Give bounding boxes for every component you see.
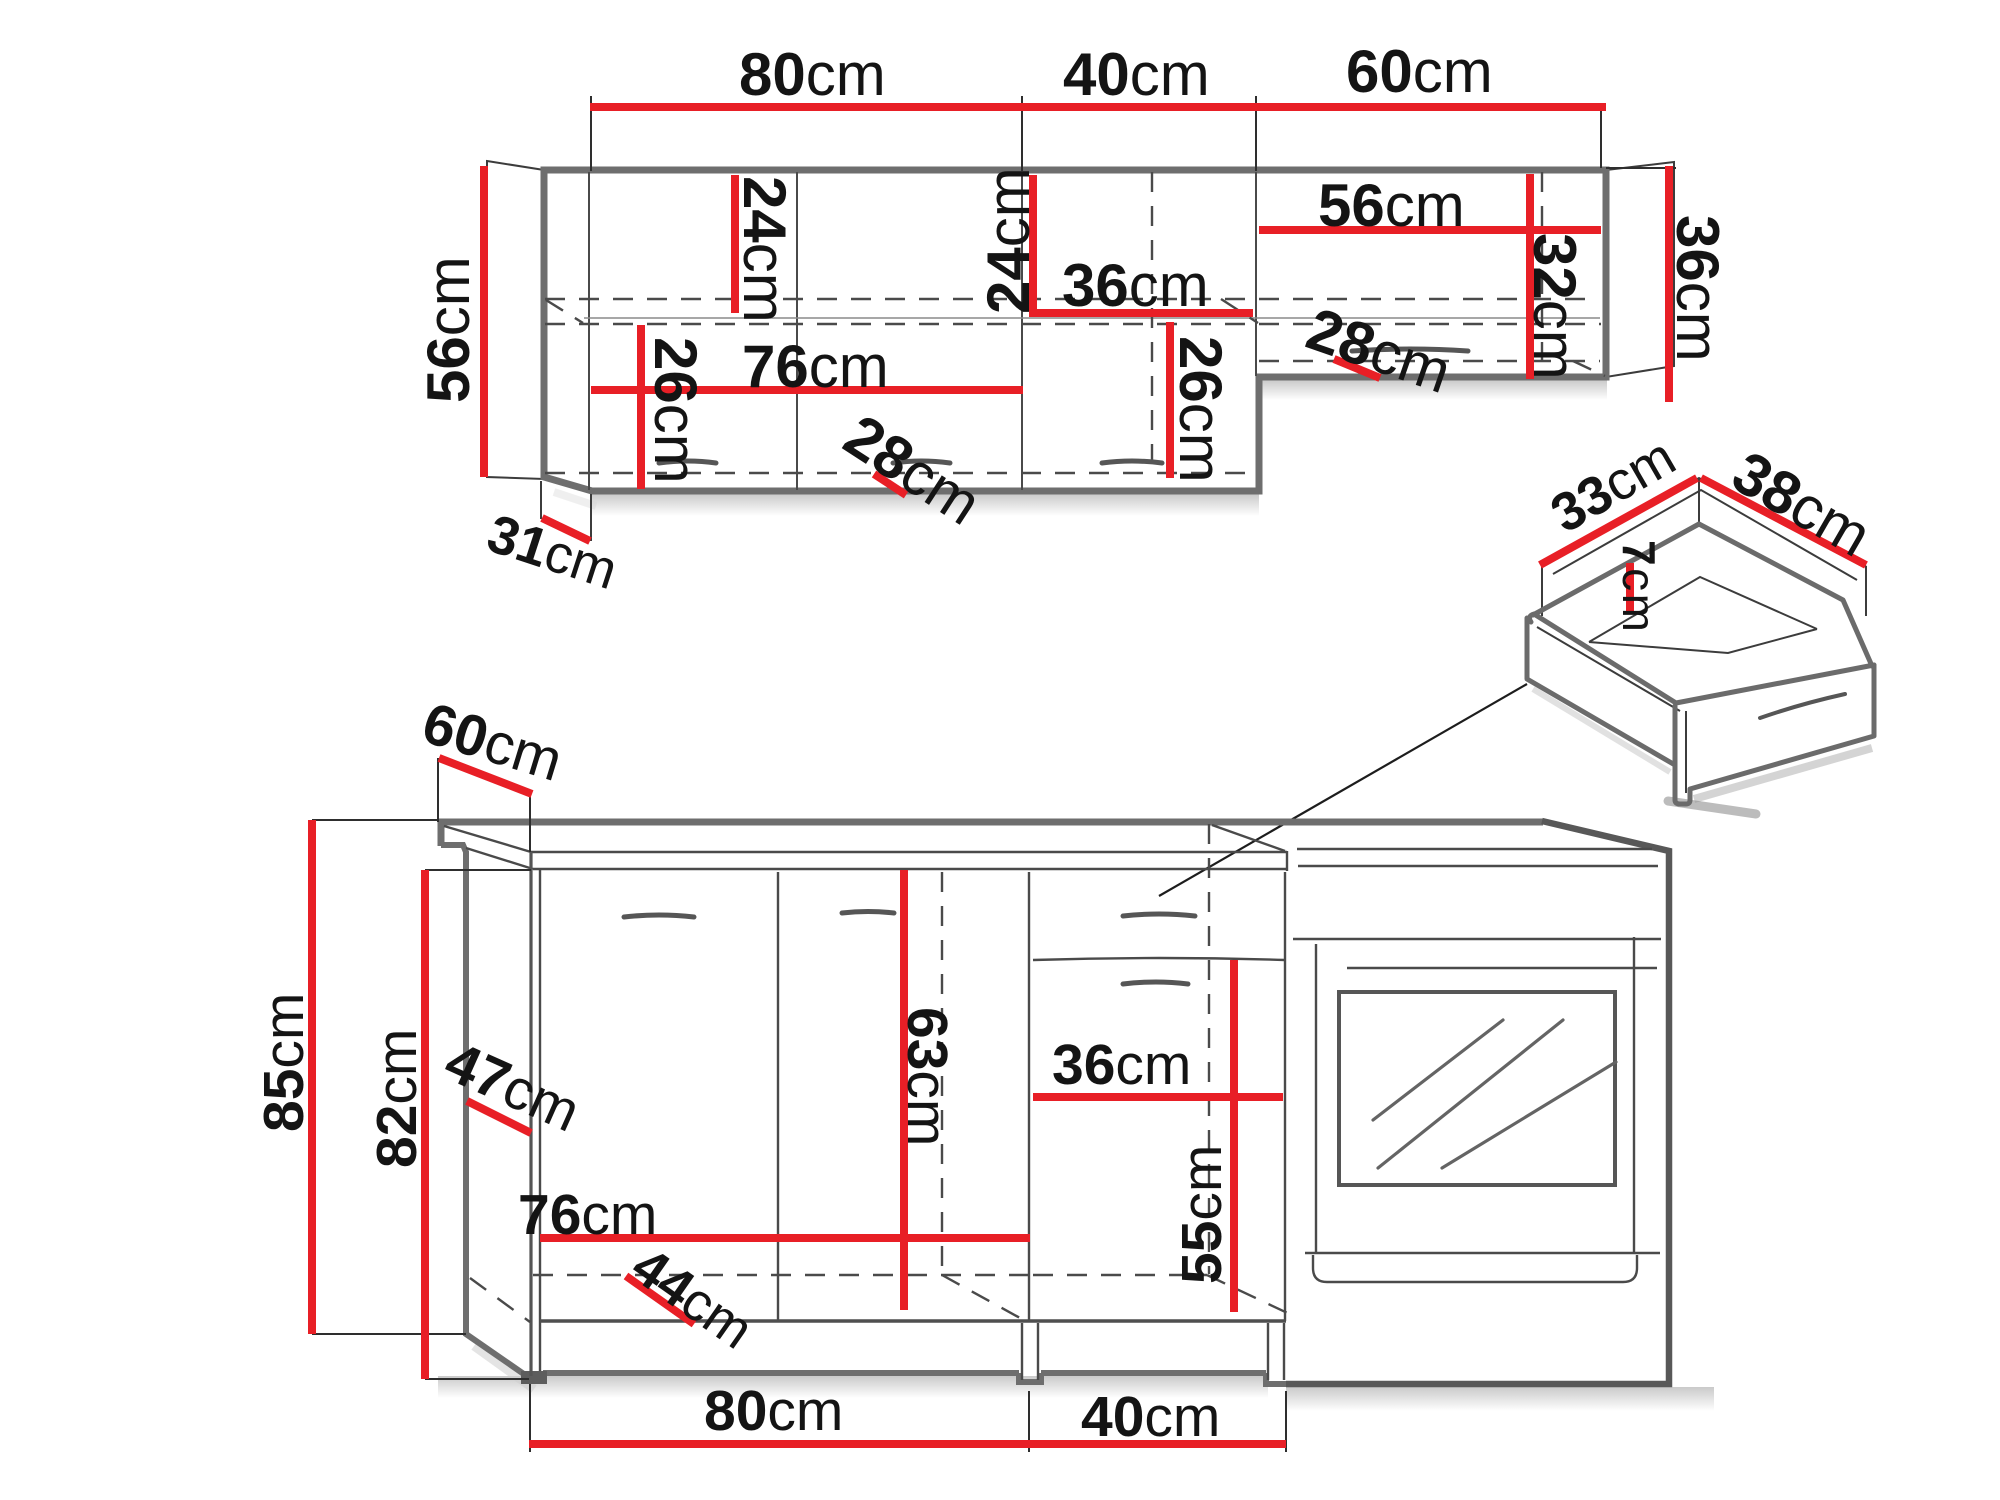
svg-text:82cm: 82cm	[365, 1029, 429, 1168]
svg-text:56cm: 56cm	[1318, 172, 1465, 239]
svg-text:36cm: 36cm	[1062, 252, 1209, 319]
svg-text:24cm: 24cm	[975, 167, 1042, 314]
svg-text:40cm: 40cm	[1063, 41, 1210, 108]
svg-text:32cm: 32cm	[1521, 233, 1588, 380]
svg-text:80cm: 80cm	[739, 41, 886, 108]
svg-text:76cm: 76cm	[742, 333, 889, 400]
svg-text:26cm: 26cm	[1167, 336, 1234, 483]
svg-text:40cm: 40cm	[1081, 1385, 1220, 1449]
svg-text:80cm: 80cm	[704, 1379, 843, 1443]
svg-text:24cm: 24cm	[731, 176, 798, 323]
svg-text:26cm: 26cm	[642, 337, 709, 484]
svg-text:36cm: 36cm	[1052, 1033, 1191, 1097]
svg-text:7cm: 7cm	[1613, 540, 1665, 634]
svg-text:85cm: 85cm	[252, 993, 316, 1132]
svg-text:36cm: 36cm	[1664, 215, 1731, 362]
svg-text:76cm: 76cm	[518, 1183, 657, 1247]
svg-text:63cm: 63cm	[895, 1007, 959, 1146]
svg-text:55cm: 55cm	[1170, 1145, 1234, 1284]
svg-text:56cm: 56cm	[415, 256, 482, 403]
svg-text:60cm: 60cm	[1346, 38, 1493, 105]
